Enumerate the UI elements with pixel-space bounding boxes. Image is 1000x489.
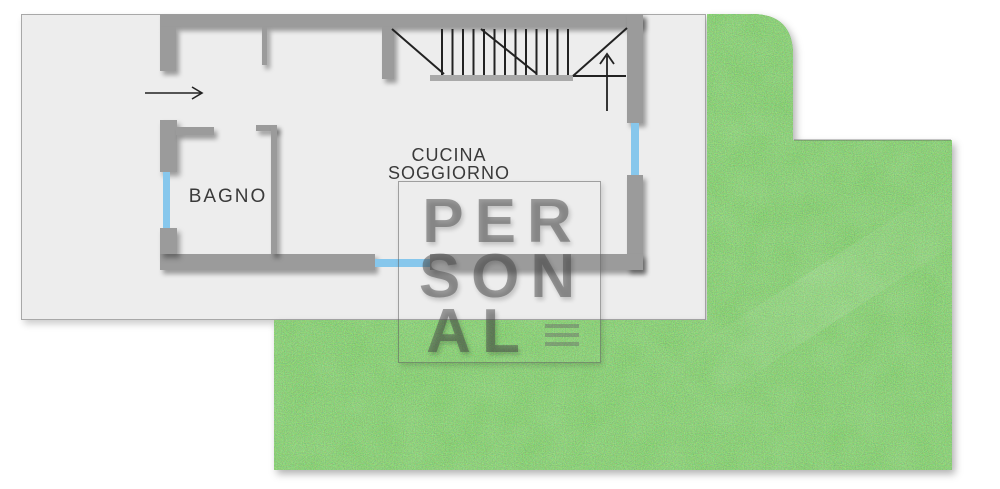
room-label-cucina-line2: SOGGIORNO <box>369 164 529 182</box>
room-label-bagno: BAGNO <box>180 186 276 208</box>
wall-bottom-left <box>160 254 375 270</box>
room-label-cucina-soggiorno: CUCINA SOGGIORNO <box>369 146 529 182</box>
wall-right-upper <box>627 14 643 123</box>
window-right <box>631 123 639 175</box>
watermark-line3-text: AL <box>420 304 531 359</box>
watermark-frame: PER SON AL <box>398 181 601 363</box>
watermark-line3: AL <box>420 304 579 359</box>
room-label-cucina-line1: CUCINA <box>369 146 529 164</box>
wall-left-middle <box>160 120 177 172</box>
wall-bagno-top <box>176 127 214 135</box>
wall-left-lower <box>160 228 177 254</box>
watermark-line2: SON <box>413 249 586 304</box>
wall-top <box>160 14 643 27</box>
window-bagno-left <box>163 172 170 228</box>
terrace-slab <box>21 14 706 320</box>
wall-hall-stub <box>262 27 267 65</box>
watermark-line1: PER <box>416 194 582 249</box>
wall-stairs-stub <box>382 27 394 79</box>
watermark-logo-icon <box>545 324 579 350</box>
wall-left-upper <box>160 27 176 71</box>
floor-plan-canvas: BAGNO CUCINA SOGGIORNO PER SON AL <box>0 0 1000 489</box>
grass-sheen <box>663 172 995 414</box>
